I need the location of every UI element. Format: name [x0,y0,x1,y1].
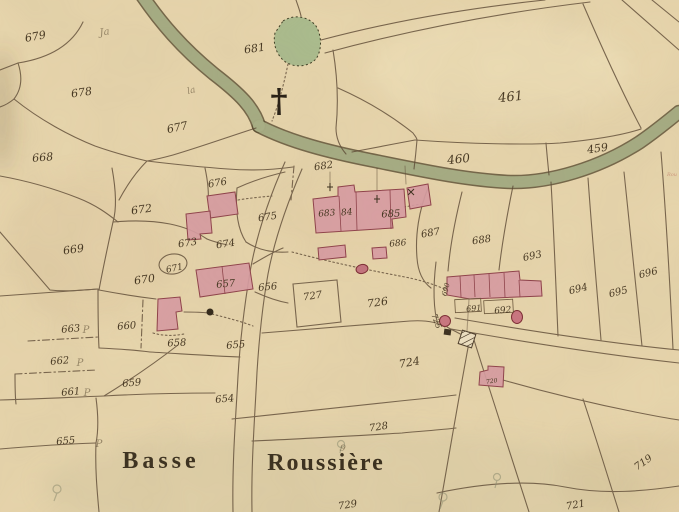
cadastral-map: † 67967868167766846146045968267667267568… [0,0,679,512]
paper-grain-overlay [0,0,679,512]
map-canvas: † 67967868167766846146045968267667267568… [0,0,679,512]
